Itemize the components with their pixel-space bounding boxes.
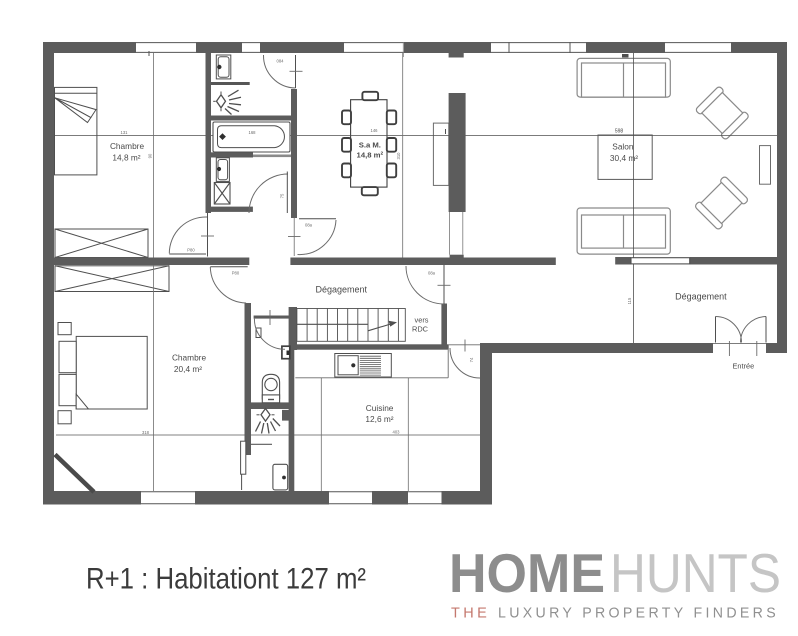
svg-text:131: 131 bbox=[121, 130, 129, 135]
svg-text:Chambre: Chambre bbox=[172, 352, 207, 362]
svg-text:74: 74 bbox=[469, 357, 474, 362]
svg-text:Dégagement: Dégagement bbox=[316, 285, 368, 295]
svg-text:90: 90 bbox=[148, 153, 153, 158]
svg-text:Entrée: Entrée bbox=[733, 362, 755, 371]
svg-text:Chambre: Chambre bbox=[110, 141, 145, 151]
svg-text:Salon: Salon bbox=[612, 142, 634, 152]
svg-text:403: 403 bbox=[393, 430, 401, 435]
svg-text:75: 75 bbox=[280, 193, 285, 198]
svg-text:Cuisine: Cuisine bbox=[366, 403, 394, 413]
svg-text:08a: 08a bbox=[428, 271, 436, 276]
svg-text:146: 146 bbox=[371, 128, 379, 133]
svg-text:598: 598 bbox=[615, 129, 624, 135]
svg-text:115: 115 bbox=[627, 297, 632, 304]
svg-text:08a: 08a bbox=[305, 223, 313, 228]
svg-text:20,4 m²: 20,4 m² bbox=[174, 364, 202, 374]
svg-text:12,6 m²: 12,6 m² bbox=[365, 414, 393, 424]
svg-text:P80: P80 bbox=[187, 248, 195, 253]
svg-text:318: 318 bbox=[142, 430, 150, 435]
svg-text:168: 168 bbox=[249, 130, 257, 135]
svg-text:LUXURY PROPERTY FINDERS: LUXURY PROPERTY FINDERS bbox=[498, 606, 779, 622]
svg-text:14,8 m²: 14,8 m² bbox=[357, 151, 384, 160]
svg-text:HOME: HOME bbox=[449, 542, 605, 604]
svg-text:P80: P80 bbox=[232, 271, 240, 276]
svg-text:Dégagement: Dégagement bbox=[675, 292, 727, 302]
svg-text:310: 310 bbox=[396, 152, 401, 160]
svg-text:R+1 : Habitationt 127 m²: R+1 : Habitationt 127 m² bbox=[86, 563, 366, 596]
svg-text:084: 084 bbox=[277, 59, 285, 64]
svg-text:vers: vers bbox=[415, 316, 429, 325]
svg-text:14,8 m²: 14,8 m² bbox=[112, 153, 140, 163]
svg-text:S.a M.: S.a M. bbox=[359, 140, 381, 149]
svg-text:THE: THE bbox=[451, 606, 490, 622]
svg-text:HUNTS: HUNTS bbox=[610, 542, 781, 604]
svg-text:RDC: RDC bbox=[412, 325, 429, 334]
svg-text:30,4 m²: 30,4 m² bbox=[610, 153, 638, 163]
